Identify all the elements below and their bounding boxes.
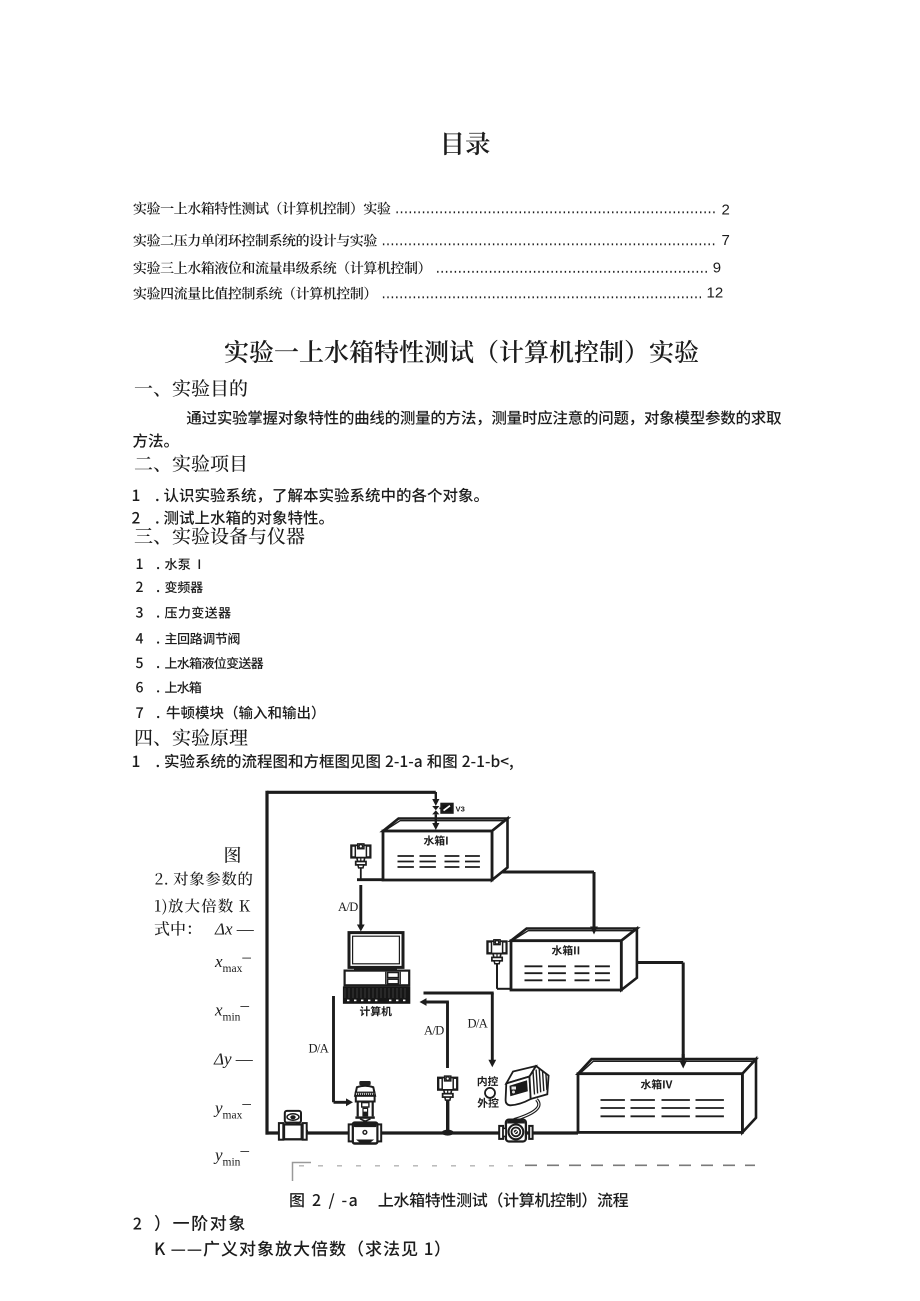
svg-text:A/D: A/D xyxy=(424,1023,444,1037)
svg-text:D/A: D/A xyxy=(309,1042,329,1056)
svg-text:D/A: D/A xyxy=(468,1017,488,1031)
svg-text:12: 12 xyxy=(707,285,724,302)
svg-text:A/D: A/D xyxy=(338,900,358,914)
svg-text:7: 7 xyxy=(722,232,730,249)
svg-text:Δx —: Δx — xyxy=(214,920,255,939)
svg-text:9: 9 xyxy=(713,259,721,276)
svg-text:Δy —: Δy — xyxy=(213,1050,254,1069)
svg-text:V3: V3 xyxy=(456,804,465,813)
svg-text:2: 2 xyxy=(722,201,730,218)
